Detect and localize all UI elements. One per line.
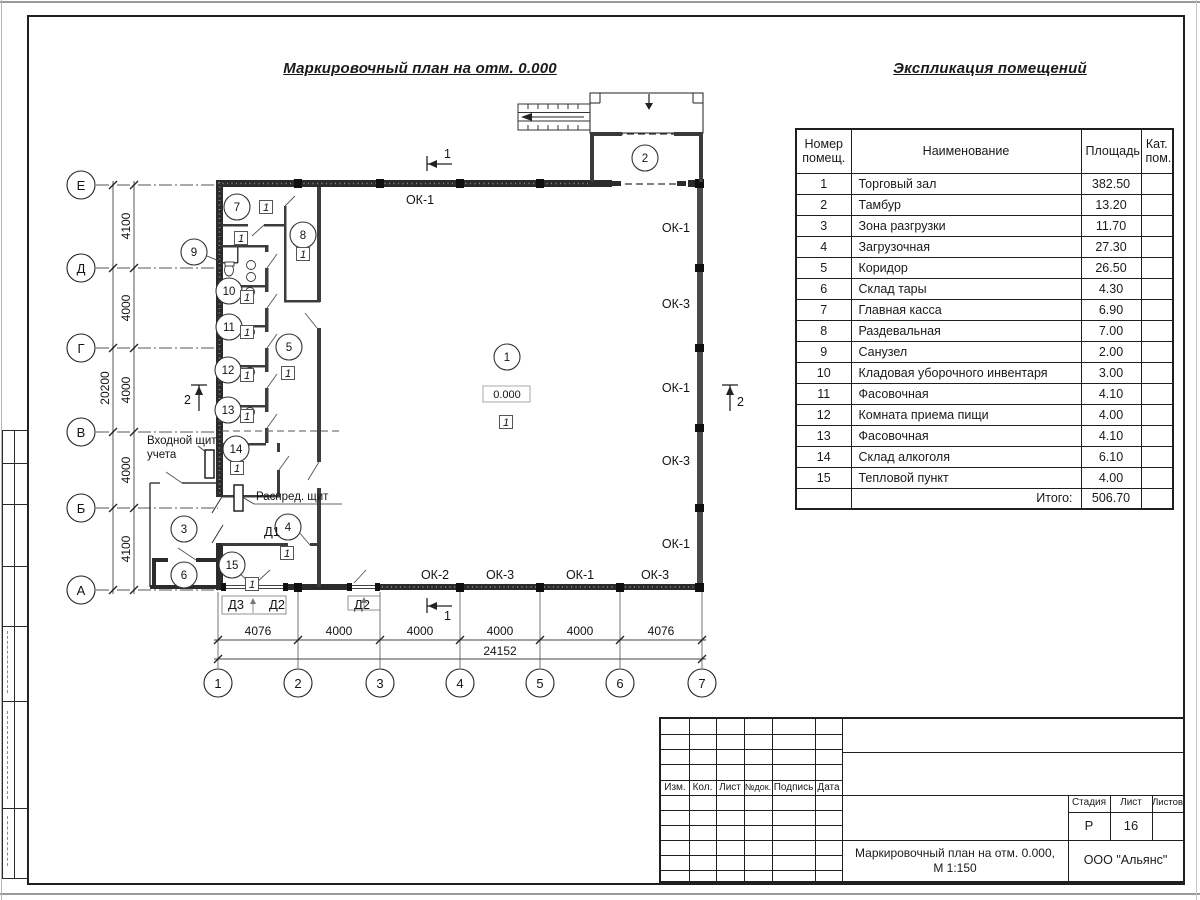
rev-col-dok: №док.	[744, 782, 772, 792]
dim-label: 4000	[119, 294, 133, 321]
window-label: ОК-1	[662, 221, 690, 235]
svg-text:1: 1	[284, 548, 290, 560]
title-block: Изм. Кол. Лист №док. Подпись Дата Стадия…	[659, 717, 1185, 883]
axis-label: Д	[77, 261, 86, 276]
cell-area: 4.00	[1081, 467, 1141, 488]
cell-area: 4.00	[1081, 404, 1141, 425]
dim-label: 4000	[487, 624, 514, 638]
svg-text:2: 2	[184, 393, 191, 407]
svg-text:1: 1	[244, 327, 250, 339]
room-number: 6	[181, 570, 187, 582]
entrance-arrow-icon	[645, 94, 653, 110]
cell-category	[1141, 404, 1173, 425]
cell-area: 7.00	[1081, 320, 1141, 341]
cell-category	[1141, 299, 1173, 320]
sheet-edge-top	[0, 1, 1200, 3]
cell-category	[1141, 173, 1173, 194]
cell-area: 27.30	[1081, 236, 1141, 257]
cell-number: 9	[796, 341, 851, 362]
door-labels: Д1 Д3 Д2 Д2	[228, 524, 370, 612]
svg-text:1: 1	[503, 417, 509, 429]
cell-name: Коридор	[851, 257, 1081, 278]
dim-total-label: 24152	[483, 644, 517, 658]
table-row: 4Загрузочная27.30	[796, 236, 1173, 257]
cell-name: Санузел	[851, 341, 1081, 362]
svg-text:1: 1	[263, 202, 269, 214]
table-row: 15Тепловой пункт4.00	[796, 467, 1173, 488]
cell-number: 1	[796, 173, 851, 194]
table-header-row: Номер помещ. Наименование Площадь Кат. п…	[796, 129, 1173, 173]
doc-title-line2: М 1:150	[844, 861, 1066, 876]
door-label: Д3	[228, 597, 244, 612]
window-label: ОК-1	[566, 568, 594, 582]
window-label: ОК-1	[406, 193, 434, 207]
col-header-area: Площадь	[1081, 129, 1141, 173]
cell-number: 12	[796, 404, 851, 425]
cell-number: 13	[796, 425, 851, 446]
cell-name: Торговый зал	[851, 173, 1081, 194]
door-label: Д2	[269, 597, 285, 612]
section-mark-numbers: 1 1 2 2	[184, 147, 744, 623]
dim-total-label: 20200	[98, 371, 112, 405]
cell-category	[1141, 215, 1173, 236]
entry-panel-label: Входной щит	[147, 435, 217, 447]
window-labels: ОК-1 ОК-1 ОК-3 ОК-1 ОК-3 ОК-1 ОК-2 ОК-3 …	[406, 193, 690, 582]
room-number: 9	[191, 247, 197, 259]
rev-col-kol: Кол.	[689, 782, 716, 793]
section-mark-arrows	[195, 160, 734, 610]
window-label: ОК-3	[662, 297, 690, 311]
door-label: Д1	[264, 524, 280, 539]
dim-label: 4000	[119, 376, 133, 403]
room-number: 5	[286, 342, 292, 354]
cell-name: Раздевальная	[851, 320, 1081, 341]
axis-label: Б	[77, 501, 86, 516]
explication-title: Экспликация помещений	[840, 60, 1140, 77]
table-row: 7Главная касса6.90	[796, 299, 1173, 320]
cell-area: 4.10	[1081, 383, 1141, 404]
svg-text:1: 1	[444, 609, 451, 623]
axis-label: 1	[214, 676, 221, 691]
ramp-arrow-icon	[521, 113, 584, 121]
svg-text:1: 1	[244, 292, 250, 304]
rev-col-list: Лист	[716, 782, 744, 793]
svg-text:1: 1	[444, 147, 451, 161]
axis-label: 6	[616, 676, 623, 691]
total-value: 506.70	[1081, 488, 1141, 509]
sink-icon	[247, 273, 256, 282]
room-number: 10	[223, 286, 236, 298]
cell-name: Склад тары	[851, 278, 1081, 299]
room-number: 7	[234, 202, 240, 214]
axis-circles-rows	[67, 171, 95, 604]
elevation-mark: 0.000	[483, 386, 530, 402]
room-number: 2	[642, 153, 648, 165]
cell-category	[1141, 236, 1173, 257]
axis-label: В	[77, 425, 86, 440]
cell-category	[1141, 278, 1173, 299]
table-row: 1Торговый зал382.50	[796, 173, 1173, 194]
axis-label: 2	[294, 676, 301, 691]
sheets-label: Листов	[1152, 797, 1183, 808]
d1-opening-break	[212, 495, 223, 543]
dist-panel-label: Распред. щит	[256, 491, 329, 503]
window-label: ОК-1	[662, 537, 690, 551]
table-row: 10Кладовая уборочного инвентаря3.00	[796, 362, 1173, 383]
distribution-panel: Распред. щит	[234, 485, 342, 511]
cell-category	[1141, 257, 1173, 278]
axis-label: 4	[456, 676, 463, 691]
stage-value: Р	[1068, 818, 1110, 833]
svg-text:1: 1	[238, 233, 244, 245]
cell-name: Склад алкоголя	[851, 446, 1081, 467]
room-number: 1	[504, 352, 510, 364]
table-row: 6Склад тары4.30	[796, 278, 1173, 299]
cell-name: Зона разгрузки	[851, 215, 1081, 236]
axis-label: А	[77, 583, 86, 598]
svg-text:1: 1	[244, 411, 250, 423]
axis-label: 7	[698, 676, 705, 691]
cell-number: 14	[796, 446, 851, 467]
cell-category	[1141, 320, 1173, 341]
cell-category	[1141, 467, 1173, 488]
cell-number: 7	[796, 299, 851, 320]
svg-text:1: 1	[234, 463, 240, 475]
entry-panel-label: учета	[147, 449, 177, 461]
col-header-category: Кат. пом.	[1141, 129, 1173, 173]
axis-label: 3	[376, 676, 383, 691]
total-label: Итого:	[851, 488, 1081, 509]
cell-name: Тамбур	[851, 194, 1081, 215]
rev-col-izm: Изм.	[661, 782, 689, 793]
room-number: 3	[181, 524, 187, 536]
col-header-number: Номер помещ.	[796, 129, 851, 173]
cell-name: Тепловой пункт	[851, 467, 1081, 488]
room-number: 4	[285, 522, 292, 534]
cell-area: 4.10	[1081, 425, 1141, 446]
window-label: ОК-1	[662, 381, 690, 395]
table-row: 14Склад алкоголя6.10	[796, 446, 1173, 467]
cell-area: 6.90	[1081, 299, 1141, 320]
dim-label: 4076	[245, 624, 272, 638]
cell-number: 8	[796, 320, 851, 341]
cell-number: 3	[796, 215, 851, 236]
svg-text:2: 2	[737, 395, 744, 409]
table-row: 8Раздевальная7.00	[796, 320, 1173, 341]
cell-area: 11.70	[1081, 215, 1141, 236]
axis-label: 5	[536, 676, 543, 691]
cell-category	[1141, 425, 1173, 446]
stage-label: Стадия	[1068, 797, 1110, 808]
toilet-icon	[225, 262, 234, 266]
doc-title: Маркировочный план на отм. 0.000, М 1:15…	[844, 846, 1066, 876]
cell-category	[1141, 383, 1173, 404]
table-row: 3Зона разгрузки11.70	[796, 215, 1173, 236]
svg-text:1: 1	[244, 370, 250, 382]
room-number: 13	[222, 405, 235, 417]
rev-col-podpis: Подпись	[772, 782, 815, 793]
cell-category	[1141, 446, 1173, 467]
dim-label: 4100	[119, 535, 133, 562]
axis-lines-cols	[218, 592, 702, 668]
sink-icon	[247, 261, 256, 270]
cell-area: 13.20	[1081, 194, 1141, 215]
table-row: 9Санузел2.00	[796, 341, 1173, 362]
doc-title-line1: Маркировочный план на отм. 0.000,	[844, 846, 1066, 861]
cell-name: Главная касса	[851, 299, 1081, 320]
dim-label: 4000	[119, 456, 133, 483]
table-row: 12Комната приема пищи4.00	[796, 404, 1173, 425]
cell-area: 3.00	[1081, 362, 1141, 383]
room-number: 12	[222, 365, 235, 377]
cell-name: Фасовочная	[851, 425, 1081, 446]
table-row: 2Тамбур13.20	[796, 194, 1173, 215]
cell-area: 382.50	[1081, 173, 1141, 194]
cell-number: 11	[796, 383, 851, 404]
cell-area: 4.30	[1081, 278, 1141, 299]
cell-number: 4	[796, 236, 851, 257]
floor-plan: 4100 4000 4000 4000 4100 20200 Е Д Г В Б…	[55, 50, 795, 700]
sheet-label: Лист	[1110, 797, 1152, 808]
entry-meter-panel: Входной щит учета	[147, 435, 217, 478]
room-number: 11	[223, 322, 235, 334]
col-header-name: Наименование	[851, 129, 1081, 173]
dim-label: 4076	[648, 624, 675, 638]
cell-area: 26.50	[1081, 257, 1141, 278]
room-number: 14	[230, 444, 243, 456]
cell-category	[1141, 362, 1173, 383]
sheet-edge-bottom	[0, 893, 1200, 895]
svg-text:1: 1	[249, 579, 255, 591]
cell-number: 10	[796, 362, 851, 383]
window-label: ОК-3	[662, 454, 690, 468]
cell-number: 15	[796, 467, 851, 488]
cell-name: Кладовая уборочного инвентаря	[851, 362, 1081, 383]
cell-number: 6	[796, 278, 851, 299]
sheet-edge-right	[1196, 0, 1197, 900]
cell-number: 2	[796, 194, 851, 215]
table-row: 5Коридор26.50	[796, 257, 1173, 278]
cell-number: 5	[796, 257, 851, 278]
elevation-value: 0.000	[493, 389, 521, 401]
window-label: ОК-3	[486, 568, 514, 582]
window-label: ОК-2	[421, 568, 449, 582]
cell-name: Комната приема пищи	[851, 404, 1081, 425]
explication-table: Номер помещ. Наименование Площадь Кат. п…	[795, 128, 1174, 510]
dim-label: 4000	[567, 624, 594, 638]
cell-area: 6.10	[1081, 446, 1141, 467]
cell-name: Фасовочная	[851, 383, 1081, 404]
exterior-walls	[150, 180, 703, 590]
cell-area: 2.00	[1081, 341, 1141, 362]
cell-number	[796, 488, 851, 509]
dim-label: 4100	[119, 212, 133, 239]
room-number: 8	[300, 230, 306, 242]
axis-label: Е	[77, 178, 86, 193]
axis-circle-labels-rows: Е Д Г В Б А	[77, 178, 86, 598]
left-margin-stamp	[2, 430, 29, 879]
dim-label: 4000	[407, 624, 434, 638]
dim-label: 4000	[326, 624, 353, 638]
table-total-row: Итого: 506.70	[796, 488, 1173, 509]
svg-text:1: 1	[300, 249, 306, 261]
window-label: ОК-3	[641, 568, 669, 582]
cell-category	[1141, 194, 1173, 215]
cell-category	[1141, 488, 1173, 509]
company-name: ООО "Альянс"	[1068, 840, 1183, 881]
svg-text:1: 1	[285, 368, 291, 380]
axis-label: Г	[77, 341, 84, 356]
entrance-platform	[590, 93, 703, 133]
table-row: 11Фасовочная4.10	[796, 383, 1173, 404]
cell-name: Загрузочная	[851, 236, 1081, 257]
room-number: 15	[226, 560, 239, 572]
sheet-number: 16	[1110, 818, 1152, 833]
table-row: 13Фасовочная4.10	[796, 425, 1173, 446]
cell-category	[1141, 341, 1173, 362]
rev-col-data: Дата	[815, 782, 842, 793]
